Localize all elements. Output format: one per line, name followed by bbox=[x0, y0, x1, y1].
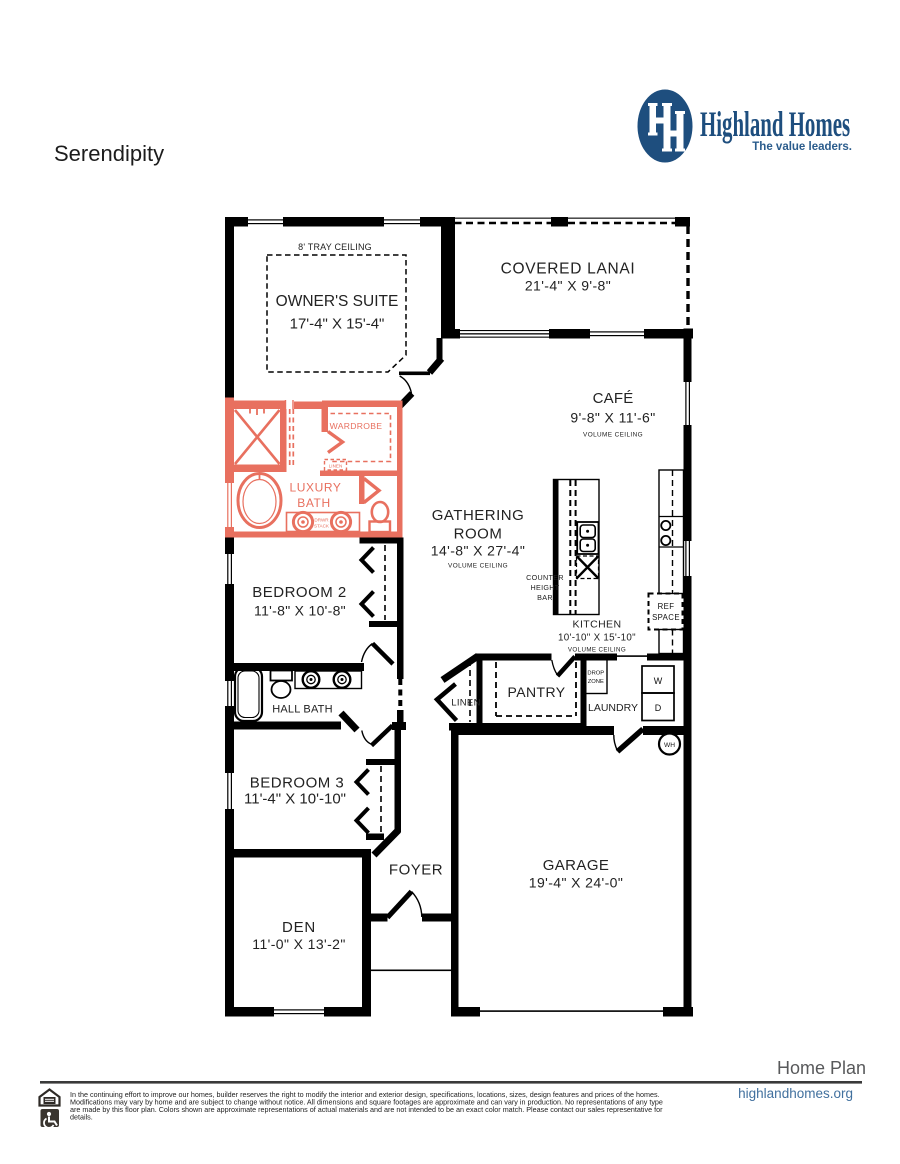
svg-text:are made by this floor plan. C: are made by this floor plan. Colors show… bbox=[70, 1105, 663, 1114]
svg-text:14'-8" X 27'-4": 14'-8" X 27'-4" bbox=[431, 543, 525, 559]
svg-text:BAR: BAR bbox=[537, 593, 553, 602]
svg-text:21'-4" X 9'-8": 21'-4" X 9'-8" bbox=[525, 278, 611, 294]
svg-text:BEDROOM 2: BEDROOM 2 bbox=[252, 584, 347, 601]
svg-text:REF: REF bbox=[658, 602, 675, 611]
svg-text:ZONE: ZONE bbox=[588, 679, 604, 685]
svg-text:Serendipity: Serendipity bbox=[54, 141, 164, 166]
svg-text:DRWR: DRWR bbox=[314, 518, 329, 523]
svg-text:COVERED LANAI: COVERED LANAI bbox=[501, 261, 636, 278]
svg-text:KITCHEN: KITCHEN bbox=[573, 619, 622, 631]
svg-text:9'-8" X 11'-6": 9'-8" X 11'-6" bbox=[570, 410, 655, 426]
svg-text:STACK: STACK bbox=[314, 524, 330, 529]
svg-text:VOLUME CEILING: VOLUME CEILING bbox=[568, 647, 626, 654]
svg-text:11'-4" X 10'-10": 11'-4" X 10'-10" bbox=[244, 791, 346, 808]
svg-text:10'-10" X 15'-10": 10'-10" X 15'-10" bbox=[558, 633, 636, 644]
svg-text:11'-0" X 13'-2": 11'-0" X 13'-2" bbox=[252, 936, 345, 952]
svg-text:PANTRY: PANTRY bbox=[508, 684, 566, 700]
svg-text:GATHERING: GATHERING bbox=[432, 507, 525, 524]
svg-text:DEN: DEN bbox=[282, 919, 316, 936]
svg-text:OWNER'S SUITE: OWNER'S SUITE bbox=[276, 293, 399, 310]
svg-text:details.: details. bbox=[70, 1113, 93, 1122]
svg-text:19'-4" X 24'-0": 19'-4" X 24'-0" bbox=[529, 875, 623, 891]
svg-text:D: D bbox=[655, 703, 662, 713]
svg-text:WH: WH bbox=[664, 742, 675, 749]
svg-text:SPACE: SPACE bbox=[652, 613, 680, 622]
svg-text:COUNTER: COUNTER bbox=[526, 573, 564, 582]
svg-text:LUXURY: LUXURY bbox=[289, 481, 341, 495]
svg-text:CAFÉ: CAFÉ bbox=[593, 390, 634, 407]
svg-text:BATH: BATH bbox=[297, 496, 331, 510]
svg-text:HEIGHT: HEIGHT bbox=[531, 583, 560, 592]
svg-text:LINEN: LINEN bbox=[451, 698, 480, 709]
svg-text:ROOM: ROOM bbox=[454, 526, 503, 543]
svg-text:VOLUME CEILING: VOLUME CEILING bbox=[448, 563, 508, 570]
svg-text:Home Plan: Home Plan bbox=[777, 1058, 866, 1078]
svg-text:highlandhomes.org: highlandhomes.org bbox=[738, 1086, 853, 1101]
svg-text:FOYER: FOYER bbox=[389, 862, 443, 879]
svg-text:VOLUME CEILING: VOLUME CEILING bbox=[583, 432, 643, 439]
svg-text:BEDROOM 3: BEDROOM 3 bbox=[250, 775, 345, 792]
svg-text:11'-8" X 10'-8": 11'-8" X 10'-8" bbox=[254, 603, 346, 619]
svg-text:LAUNDRY: LAUNDRY bbox=[588, 702, 638, 714]
svg-text:HALL BATH: HALL BATH bbox=[272, 704, 333, 716]
svg-text:W: W bbox=[654, 676, 663, 686]
svg-text:Highland Homes: Highland Homes bbox=[700, 105, 850, 144]
svg-text:The value leaders.: The value leaders. bbox=[752, 141, 852, 153]
svg-text:GARAGE: GARAGE bbox=[543, 857, 610, 874]
svg-text:WARDROBE: WARDROBE bbox=[330, 421, 383, 431]
svg-text:8' TRAY CEILING: 8' TRAY CEILING bbox=[298, 242, 372, 252]
svg-text:LINEN: LINEN bbox=[329, 464, 343, 469]
svg-text:DROP: DROP bbox=[587, 671, 604, 677]
svg-text:17'-4" X 15'-4": 17'-4" X 15'-4" bbox=[290, 316, 385, 333]
